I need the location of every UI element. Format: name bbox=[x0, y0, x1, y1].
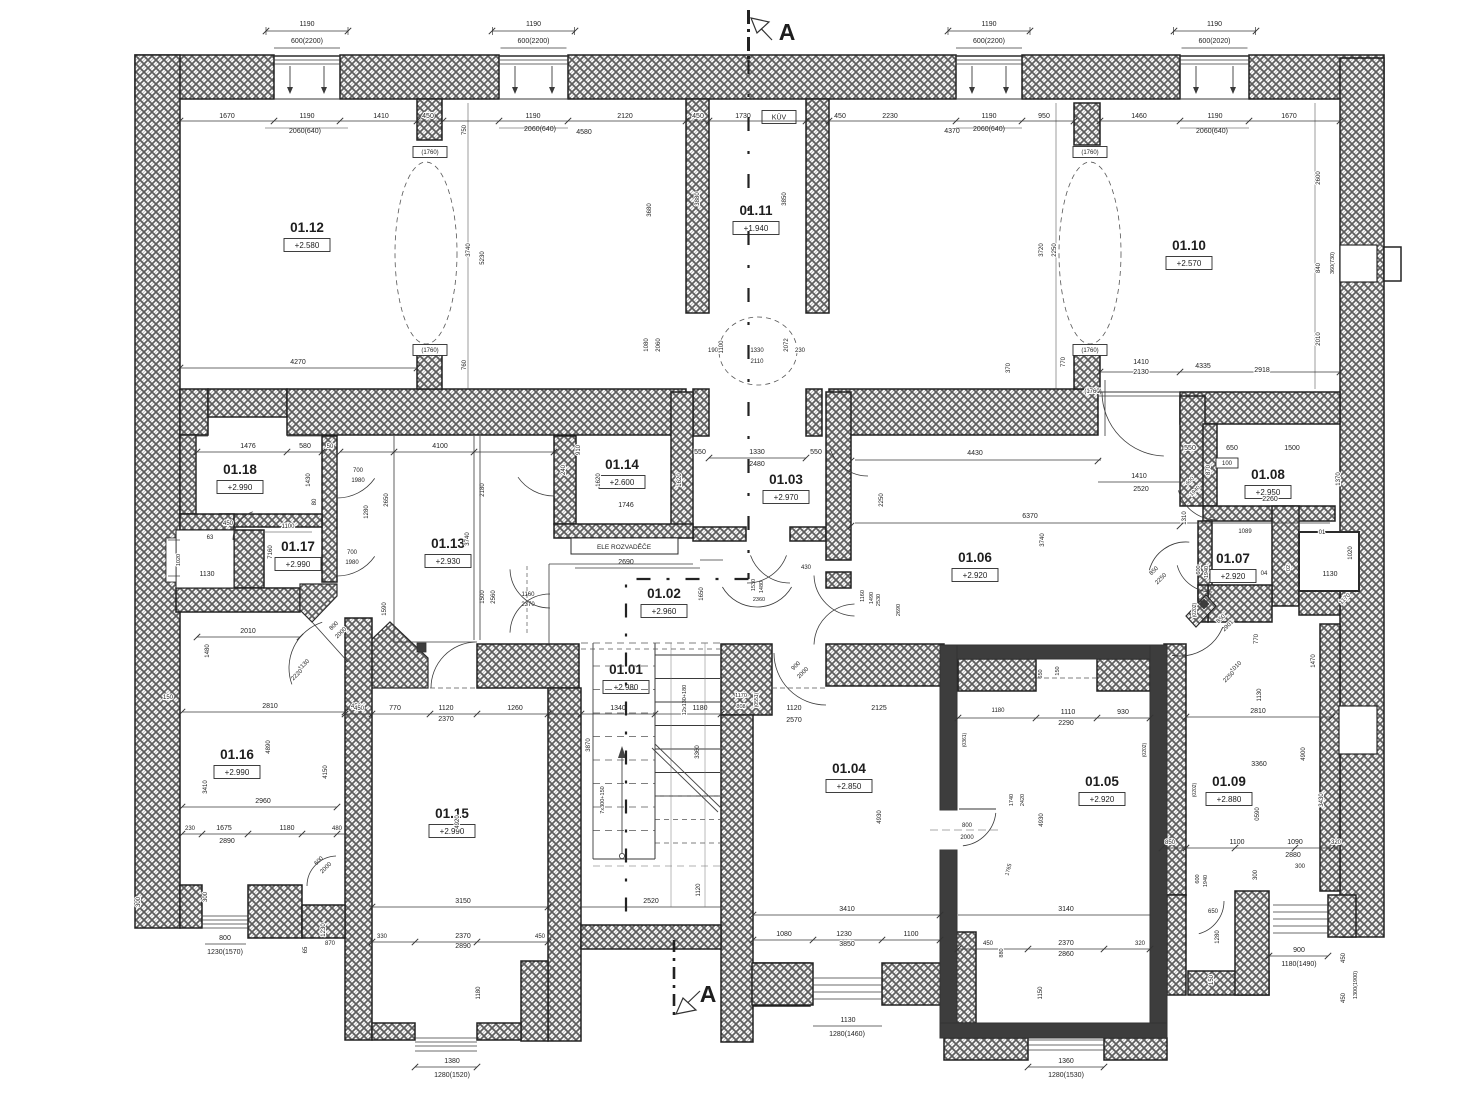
svg-text:1180: 1180 bbox=[992, 708, 1006, 714]
svg-text:1410: 1410 bbox=[373, 113, 389, 120]
svg-text:650: 650 bbox=[1038, 669, 1044, 678]
svg-text:2530: 2530 bbox=[876, 594, 882, 606]
svg-text:1190: 1190 bbox=[981, 113, 996, 120]
svg-text:150: 150 bbox=[163, 695, 174, 701]
svg-text:880: 880 bbox=[999, 948, 1005, 957]
svg-text:A: A bbox=[700, 981, 717, 1007]
svg-text:3740: 3740 bbox=[465, 532, 471, 546]
svg-text:+2.960: +2.960 bbox=[652, 607, 677, 616]
svg-text:600(2200): 600(2200) bbox=[973, 38, 1005, 45]
svg-text:2690: 2690 bbox=[618, 559, 634, 566]
svg-text:4900: 4900 bbox=[1301, 747, 1307, 761]
svg-text:04: 04 bbox=[1261, 571, 1268, 577]
svg-text:3850: 3850 bbox=[839, 941, 855, 948]
svg-text:3150: 3150 bbox=[455, 898, 471, 905]
svg-text:2000: 2000 bbox=[960, 835, 974, 841]
svg-text:1130: 1130 bbox=[199, 571, 214, 578]
svg-text:+2.880: +2.880 bbox=[1217, 795, 1242, 804]
svg-text:2060(640): 2060(640) bbox=[524, 126, 556, 133]
svg-text:2130: 2130 bbox=[1133, 369, 1149, 376]
svg-text:2480: 2480 bbox=[749, 461, 765, 468]
svg-text:3680: 3680 bbox=[647, 203, 653, 217]
svg-text:2810: 2810 bbox=[1250, 708, 1266, 715]
svg-text:1190: 1190 bbox=[299, 21, 314, 28]
svg-text:1120: 1120 bbox=[438, 705, 453, 712]
svg-text:1100: 1100 bbox=[1229, 839, 1244, 846]
svg-text:2180: 2180 bbox=[480, 483, 486, 497]
svg-text:4930: 4930 bbox=[877, 810, 883, 824]
svg-text:4270: 4270 bbox=[290, 359, 306, 366]
svg-text:870: 870 bbox=[325, 941, 336, 947]
svg-text:2520: 2520 bbox=[1133, 486, 1149, 493]
svg-text:240: 240 bbox=[561, 464, 567, 475]
svg-text:01.13: 01.13 bbox=[431, 536, 465, 551]
svg-text:300: 300 bbox=[1295, 864, 1306, 870]
svg-text:750: 750 bbox=[462, 124, 468, 135]
svg-text:1330: 1330 bbox=[749, 449, 765, 456]
svg-text:1100: 1100 bbox=[282, 524, 296, 530]
svg-text:600: 600 bbox=[1195, 874, 1201, 883]
svg-text:1190: 1190 bbox=[526, 21, 541, 28]
svg-text:480: 480 bbox=[332, 826, 343, 832]
svg-text:770: 770 bbox=[389, 705, 401, 712]
svg-text:840: 840 bbox=[1316, 262, 1322, 273]
svg-text:1280: 1280 bbox=[364, 505, 370, 519]
svg-text:+2.920: +2.920 bbox=[1090, 795, 1115, 804]
svg-text:1410: 1410 bbox=[1131, 473, 1147, 480]
svg-text:1130: 1130 bbox=[1257, 688, 1263, 702]
svg-text:5230: 5230 bbox=[480, 251, 486, 265]
svg-text:808: 808 bbox=[736, 704, 745, 710]
svg-text:150: 150 bbox=[1209, 974, 1215, 985]
svg-text:+2.920: +2.920 bbox=[1221, 572, 1246, 581]
svg-text:1490: 1490 bbox=[869, 592, 875, 604]
svg-text:1280(1530): 1280(1530) bbox=[1048, 1072, 1084, 1079]
svg-text:1330: 1330 bbox=[750, 348, 764, 354]
svg-text:1670: 1670 bbox=[1281, 113, 1297, 120]
svg-text:1100: 1100 bbox=[719, 340, 725, 354]
svg-text:770: 770 bbox=[1061, 356, 1067, 367]
svg-text:1180: 1180 bbox=[692, 705, 707, 712]
svg-text:01.15: 01.15 bbox=[435, 806, 469, 821]
svg-text:1620: 1620 bbox=[596, 473, 602, 487]
svg-text:02: 02 bbox=[1286, 565, 1292, 571]
svg-text:2110: 2110 bbox=[751, 359, 765, 365]
svg-text:1746: 1746 bbox=[618, 502, 634, 509]
svg-text:450: 450 bbox=[1341, 952, 1347, 963]
svg-text:430: 430 bbox=[801, 565, 812, 571]
svg-text:01.11: 01.11 bbox=[739, 203, 773, 218]
svg-text:4335: 4335 bbox=[1195, 363, 1211, 370]
svg-text:4150: 4150 bbox=[323, 765, 329, 779]
svg-text:550: 550 bbox=[810, 449, 822, 456]
svg-text:1160: 1160 bbox=[860, 590, 866, 602]
svg-text:900: 900 bbox=[1293, 947, 1305, 954]
svg-text:1340: 1340 bbox=[610, 705, 626, 712]
svg-text:01.10: 01.10 bbox=[1172, 238, 1206, 253]
svg-text:2125: 2125 bbox=[871, 705, 887, 712]
svg-text:+2.990: +2.990 bbox=[225, 768, 250, 777]
svg-text:3740: 3740 bbox=[1040, 533, 1046, 547]
svg-text:4920: 4920 bbox=[455, 815, 461, 829]
svg-text:650: 650 bbox=[1208, 909, 1219, 915]
svg-text:01.06: 01.06 bbox=[958, 550, 992, 565]
svg-text:+2.580: +2.580 bbox=[295, 241, 320, 250]
svg-text:1940: 1940 bbox=[1204, 566, 1210, 578]
svg-text:(1760): (1760) bbox=[421, 150, 438, 156]
svg-text:1280: 1280 bbox=[1215, 930, 1221, 944]
svg-text:2060(640): 2060(640) bbox=[289, 128, 321, 135]
svg-text:2650: 2650 bbox=[384, 493, 390, 507]
svg-text:+2.600: +2.600 bbox=[610, 478, 635, 487]
svg-text:+2.990: +2.990 bbox=[228, 483, 253, 492]
svg-text:2690: 2690 bbox=[896, 604, 902, 616]
svg-text:3740: 3740 bbox=[466, 243, 472, 257]
svg-text:1130: 1130 bbox=[1322, 571, 1337, 578]
svg-text:910: 910 bbox=[576, 444, 582, 455]
svg-text:1380: 1380 bbox=[444, 1058, 460, 1065]
svg-text:700: 700 bbox=[347, 550, 358, 556]
svg-text:+2.920: +2.920 bbox=[963, 571, 988, 580]
svg-text:2370: 2370 bbox=[438, 716, 454, 723]
svg-text:01.02: 01.02 bbox=[647, 586, 681, 601]
svg-text:01.16: 01.16 bbox=[220, 747, 254, 762]
svg-text:1670: 1670 bbox=[219, 113, 235, 120]
svg-text:0590: 0590 bbox=[1255, 807, 1261, 821]
svg-text:2600: 2600 bbox=[1316, 171, 1322, 185]
svg-text:1300(1900): 1300(1900) bbox=[1353, 971, 1359, 999]
svg-text:100: 100 bbox=[1222, 461, 1233, 467]
svg-text:+2.850: +2.850 bbox=[837, 782, 862, 791]
svg-text:2890: 2890 bbox=[455, 943, 471, 950]
svg-text:+2.990: +2.990 bbox=[440, 827, 465, 836]
svg-text:1230: 1230 bbox=[836, 931, 852, 938]
svg-text:230: 230 bbox=[795, 348, 806, 354]
svg-text:1230(1570): 1230(1570) bbox=[207, 949, 243, 956]
svg-text:1090: 1090 bbox=[1287, 839, 1303, 846]
svg-text:360(730): 360(730) bbox=[1330, 252, 1336, 274]
svg-text:6370: 6370 bbox=[1022, 513, 1038, 520]
svg-text:1280(1520): 1280(1520) bbox=[434, 1072, 470, 1079]
svg-text:01.09: 01.09 bbox=[1212, 774, 1246, 789]
svg-text:1020: 1020 bbox=[176, 554, 182, 566]
svg-text:550: 550 bbox=[694, 449, 706, 456]
svg-text:3360: 3360 bbox=[695, 745, 701, 759]
svg-text:4890: 4890 bbox=[266, 740, 272, 754]
svg-text:1980: 1980 bbox=[345, 560, 359, 566]
svg-text:3880: 3880 bbox=[695, 192, 701, 206]
svg-text:3720: 3720 bbox=[1039, 243, 1045, 257]
svg-text:1460: 1460 bbox=[1131, 113, 1147, 120]
svg-text:600(2200): 600(2200) bbox=[518, 38, 550, 45]
svg-text:3410: 3410 bbox=[203, 780, 209, 794]
svg-text:2230: 2230 bbox=[882, 113, 898, 120]
svg-text:330: 330 bbox=[377, 934, 388, 940]
svg-text:2072: 2072 bbox=[784, 338, 790, 352]
svg-text:1190: 1190 bbox=[1207, 21, 1222, 28]
svg-text:01.18: 01.18 bbox=[223, 462, 257, 477]
svg-text:1150: 1150 bbox=[1038, 986, 1044, 1000]
svg-text:2960: 2960 bbox=[255, 798, 271, 805]
svg-text:1980: 1980 bbox=[351, 478, 365, 484]
svg-text:50: 50 bbox=[327, 444, 334, 450]
svg-text:+2.990: +2.990 bbox=[286, 560, 311, 569]
svg-text:01: 01 bbox=[1319, 530, 1326, 536]
svg-text:(0361): (0361) bbox=[962, 732, 968, 747]
svg-text:(1760): (1760) bbox=[1081, 348, 1098, 354]
svg-text:2290: 2290 bbox=[1058, 720, 1074, 727]
svg-text:1410: 1410 bbox=[1133, 359, 1149, 366]
svg-text:450: 450 bbox=[692, 113, 704, 120]
svg-text:1080: 1080 bbox=[644, 338, 650, 352]
svg-text:01.12: 01.12 bbox=[290, 220, 324, 235]
svg-text:+2.970: +2.970 bbox=[774, 493, 799, 502]
svg-text:(1760): (1760) bbox=[421, 348, 438, 354]
svg-text:800: 800 bbox=[219, 935, 231, 942]
svg-text:2010: 2010 bbox=[1316, 332, 1322, 346]
svg-text:320: 320 bbox=[1135, 941, 1146, 947]
svg-text:4430: 4430 bbox=[967, 450, 983, 457]
svg-text:3430: 3430 bbox=[1319, 793, 1325, 807]
svg-text:2360: 2360 bbox=[753, 597, 765, 603]
svg-text:800: 800 bbox=[962, 823, 973, 829]
svg-text:2260: 2260 bbox=[1262, 496, 1278, 503]
svg-text:+2.570: +2.570 bbox=[1177, 259, 1202, 268]
svg-text:2370: 2370 bbox=[521, 602, 535, 608]
svg-text:650: 650 bbox=[1226, 445, 1238, 452]
svg-text:450: 450 bbox=[354, 706, 365, 712]
svg-text:1530: 1530 bbox=[751, 579, 757, 591]
svg-text:1180(1490): 1180(1490) bbox=[1281, 961, 1316, 968]
svg-text:2250: 2250 bbox=[1052, 243, 1058, 257]
svg-text:2010: 2010 bbox=[240, 628, 256, 635]
svg-text:01.07: 01.07 bbox=[1216, 551, 1250, 566]
svg-text:1120: 1120 bbox=[786, 705, 801, 712]
svg-text:930: 930 bbox=[1117, 709, 1129, 716]
svg-text:1590: 1590 bbox=[382, 602, 388, 616]
svg-text:2370: 2370 bbox=[1058, 940, 1074, 947]
svg-text:(1760): (1760) bbox=[1081, 150, 1098, 156]
svg-text:1089: 1089 bbox=[1238, 529, 1252, 535]
svg-text:450: 450 bbox=[983, 941, 994, 947]
svg-text:01.17: 01.17 bbox=[281, 539, 315, 554]
svg-text:300: 300 bbox=[203, 891, 209, 902]
svg-text:3850: 3850 bbox=[782, 192, 788, 206]
svg-text:2560: 2560 bbox=[491, 590, 497, 604]
svg-text:A: A bbox=[779, 19, 796, 45]
svg-text:4100: 4100 bbox=[432, 443, 448, 450]
svg-text:760: 760 bbox=[462, 359, 468, 370]
svg-text:2860: 2860 bbox=[1058, 951, 1074, 958]
svg-text:1500: 1500 bbox=[1284, 445, 1300, 452]
svg-text:2370: 2370 bbox=[455, 933, 471, 940]
svg-text:KÜV: KÜV bbox=[772, 114, 787, 122]
svg-text:450: 450 bbox=[1341, 992, 1347, 1003]
svg-text:1190: 1190 bbox=[299, 113, 314, 120]
svg-text:300: 300 bbox=[136, 896, 142, 907]
svg-text:450: 450 bbox=[223, 521, 234, 527]
svg-text:600(2200): 600(2200) bbox=[291, 38, 323, 45]
svg-text:01.08: 01.08 bbox=[1251, 467, 1285, 482]
svg-text:1480: 1480 bbox=[205, 644, 211, 658]
svg-text:2120: 2120 bbox=[617, 113, 633, 120]
svg-text:65: 65 bbox=[303, 946, 309, 953]
svg-text:1480: 1480 bbox=[759, 581, 765, 593]
svg-text:2060: 2060 bbox=[656, 338, 662, 352]
svg-text:2420: 2420 bbox=[1020, 794, 1026, 806]
svg-text:(0202): (0202) bbox=[1142, 742, 1148, 757]
svg-text:2570: 2570 bbox=[786, 717, 802, 724]
svg-text:320: 320 bbox=[1331, 840, 1342, 846]
svg-text:230: 230 bbox=[185, 826, 196, 832]
svg-text:12x130+180: 12x130+180 bbox=[682, 685, 688, 715]
svg-text:1430: 1430 bbox=[306, 473, 312, 487]
svg-text:+2.930: +2.930 bbox=[436, 557, 461, 566]
svg-text:80: 80 bbox=[312, 498, 318, 505]
svg-text:1675: 1675 bbox=[216, 825, 232, 832]
svg-text:3410: 3410 bbox=[839, 906, 855, 913]
svg-text:1120: 1120 bbox=[696, 883, 702, 897]
svg-text:1180: 1180 bbox=[476, 986, 482, 1000]
svg-text:300: 300 bbox=[1253, 869, 1259, 880]
svg-text:850: 850 bbox=[1165, 840, 1176, 846]
svg-text:01.14: 01.14 bbox=[605, 457, 639, 472]
svg-text:1260: 1260 bbox=[507, 705, 523, 712]
svg-text:370: 370 bbox=[1006, 362, 1012, 373]
svg-text:(0202): (0202) bbox=[1192, 602, 1198, 617]
svg-text:3140: 3140 bbox=[1058, 906, 1074, 913]
svg-text:1020: 1020 bbox=[1348, 546, 1354, 560]
svg-text:2060(640): 2060(640) bbox=[1196, 128, 1228, 135]
svg-text:(0551): (0551) bbox=[754, 692, 760, 707]
svg-text:1100: 1100 bbox=[903, 931, 918, 938]
svg-text:1280(1460): 1280(1460) bbox=[829, 1031, 865, 1038]
svg-text:450: 450 bbox=[535, 934, 546, 940]
svg-text:580: 580 bbox=[299, 443, 311, 450]
svg-text:2918: 2918 bbox=[1254, 367, 1270, 374]
svg-text:1110: 1110 bbox=[1061, 709, 1076, 716]
svg-text:1170: 1170 bbox=[735, 693, 747, 699]
svg-text:1620: 1620 bbox=[677, 473, 683, 487]
svg-text:1190: 1190 bbox=[525, 113, 540, 120]
svg-text:600: 600 bbox=[1196, 565, 1202, 574]
svg-text:3870: 3870 bbox=[586, 738, 592, 752]
svg-text:2810: 2810 bbox=[262, 703, 278, 710]
svg-text:4370: 4370 bbox=[944, 128, 960, 135]
svg-text:1230: 1230 bbox=[321, 923, 327, 937]
svg-text:1180: 1180 bbox=[279, 825, 294, 832]
svg-text:450: 450 bbox=[834, 113, 846, 120]
svg-text:63: 63 bbox=[207, 535, 214, 541]
svg-text:01.03: 01.03 bbox=[769, 472, 803, 487]
svg-text:2520: 2520 bbox=[643, 898, 659, 905]
svg-text:1650: 1650 bbox=[699, 587, 705, 601]
svg-text:1500: 1500 bbox=[480, 590, 486, 604]
svg-text:1740: 1740 bbox=[1009, 794, 1015, 806]
svg-text:7x300+150: 7x300+150 bbox=[600, 786, 606, 813]
svg-text:2250: 2250 bbox=[879, 493, 885, 507]
svg-text:1190: 1190 bbox=[981, 21, 996, 28]
svg-text:950: 950 bbox=[1038, 113, 1050, 120]
svg-text:4930: 4930 bbox=[1039, 813, 1045, 827]
svg-text:150: 150 bbox=[1055, 666, 1061, 675]
svg-text:770: 770 bbox=[1254, 633, 1260, 644]
svg-text:1160: 1160 bbox=[522, 592, 536, 598]
svg-text:4580: 4580 bbox=[576, 129, 592, 136]
svg-text:1940: 1940 bbox=[1203, 875, 1209, 887]
svg-text:1130: 1130 bbox=[840, 1017, 855, 1024]
svg-text:2060(640): 2060(640) bbox=[973, 126, 1005, 133]
svg-text:(0202): (0202) bbox=[1192, 782, 1198, 797]
svg-text:550: 550 bbox=[1184, 445, 1196, 452]
svg-text:01.04: 01.04 bbox=[832, 761, 866, 776]
svg-text:700: 700 bbox=[353, 468, 364, 474]
svg-text:1360: 1360 bbox=[1058, 1058, 1074, 1065]
svg-text:01.05: 01.05 bbox=[1085, 774, 1119, 789]
svg-text:2890: 2890 bbox=[219, 838, 235, 845]
svg-text:1476: 1476 bbox=[240, 443, 256, 450]
svg-text:190: 190 bbox=[708, 348, 719, 354]
svg-text:1080: 1080 bbox=[776, 931, 792, 938]
svg-text:ELE ROZVADĚČE: ELE ROZVADĚČE bbox=[597, 542, 652, 551]
svg-text:600(2020): 600(2020) bbox=[1199, 38, 1231, 45]
svg-text:450: 450 bbox=[422, 113, 434, 120]
svg-text:7160: 7160 bbox=[268, 545, 274, 559]
svg-text:3360: 3360 bbox=[1251, 761, 1267, 768]
svg-text:1470: 1470 bbox=[1311, 654, 1317, 668]
svg-text:1190: 1190 bbox=[1207, 113, 1222, 120]
svg-text:1370: 1370 bbox=[1336, 472, 1342, 486]
svg-text:870: 870 bbox=[1206, 464, 1212, 475]
svg-text:2880: 2880 bbox=[1285, 852, 1301, 859]
